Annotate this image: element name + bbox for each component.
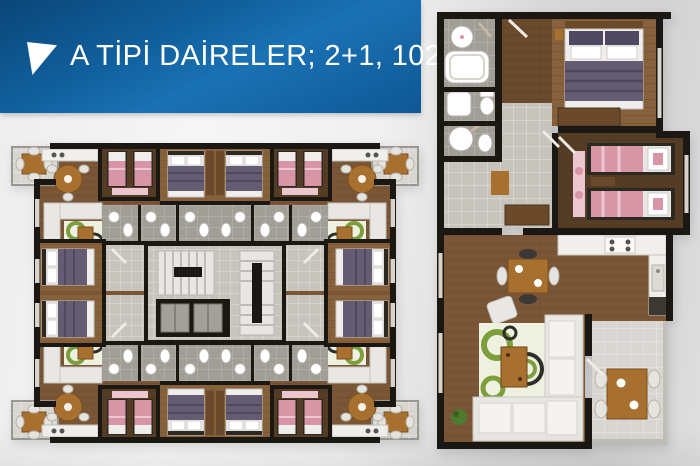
title-banner: A TİPİ DAİRELER; 2+1, 102 m² <box>0 0 421 113</box>
stairs <box>240 251 274 335</box>
hall-closet <box>505 205 549 225</box>
sink <box>449 127 473 151</box>
window <box>35 199 40 227</box>
window <box>35 259 40 283</box>
kitchen-counter <box>42 149 98 161</box>
nightstand <box>555 29 563 40</box>
balcony <box>592 321 667 445</box>
double-bed <box>168 151 204 197</box>
single-bed <box>587 188 675 220</box>
left-floor-plan-svg <box>10 139 420 447</box>
left-floor-plan <box>10 139 420 447</box>
nightstand <box>591 177 615 186</box>
kitchen-sink <box>652 265 664 291</box>
single-bed <box>107 151 127 187</box>
washbasin <box>447 92 471 116</box>
side-bedroom <box>38 243 102 291</box>
single-bed <box>133 151 153 187</box>
window <box>439 333 443 393</box>
right-apartment-plan-svg <box>435 3 695 455</box>
double-bed <box>42 249 94 285</box>
pink-rug <box>112 188 148 195</box>
hall-cabinet <box>491 171 509 195</box>
coffee-table <box>501 347 527 387</box>
dining-table <box>508 259 548 293</box>
sink <box>146 212 157 223</box>
balcony-dining-table <box>607 369 647 419</box>
double-bed <box>565 21 643 109</box>
stove <box>605 237 635 253</box>
stairs <box>158 251 214 295</box>
toilet <box>199 223 209 237</box>
sink <box>185 212 196 223</box>
toilet <box>123 223 133 237</box>
dresser <box>558 108 620 126</box>
pink-rug <box>573 151 585 217</box>
kids-bedroom <box>102 148 156 197</box>
window <box>439 253 443 298</box>
banner-title: A TİPİ DAİRELER; 2+1, 102 m² <box>70 40 484 73</box>
sink <box>109 212 120 223</box>
toilet <box>160 223 170 237</box>
stair-core <box>144 243 286 343</box>
plant <box>451 409 467 425</box>
toilet <box>478 134 492 152</box>
elevators <box>156 299 230 337</box>
window <box>685 155 689 213</box>
toilet <box>480 97 494 115</box>
bathrooms <box>102 205 215 241</box>
page-background: A TİPİ DAİRELER; 2+1, 102 m² <box>0 0 700 466</box>
master-bedroom <box>160 148 215 201</box>
wc <box>447 91 494 116</box>
wardrobe <box>206 151 214 195</box>
right-apartment-plan <box>435 3 695 455</box>
hall <box>106 245 148 291</box>
oven <box>649 297 666 315</box>
triangle-marker-icon <box>27 42 57 75</box>
window <box>658 48 662 118</box>
single-bed <box>587 143 675 175</box>
